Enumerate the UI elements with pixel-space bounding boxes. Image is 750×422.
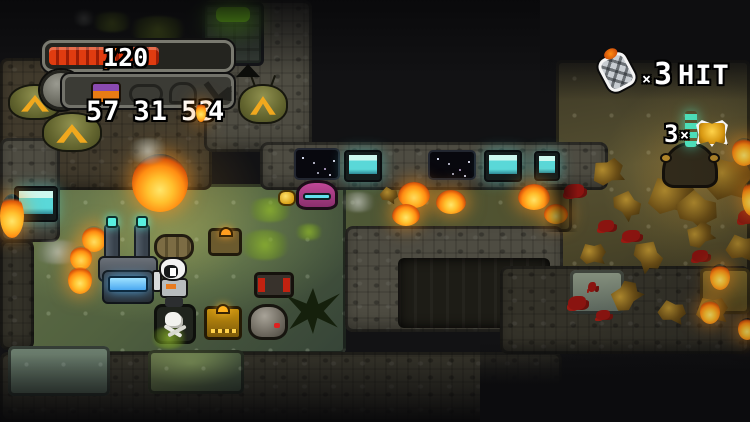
skull-icon [165, 312, 181, 326]
dots-row [211, 329, 237, 333]
health-text: 17/20 [103, 45, 118, 70]
game-scene: 17/20 573153 4 × 3 HIT 3 × [0, 0, 750, 422]
corridor-fire [392, 204, 420, 226]
turret-light-icon [106, 216, 118, 228]
ammo-count-1: 57 [86, 96, 121, 127]
floor-pocket[interactable] [8, 346, 110, 396]
gib-splat [568, 296, 586, 310]
yellow-pickup[interactable] [278, 190, 296, 206]
grenade-counter: × 3 HIT [598, 46, 748, 106]
player-helmet [159, 257, 187, 281]
machine-arm [660, 153, 672, 163]
red-band [258, 278, 265, 292]
wall-panel-dark-1 [294, 148, 340, 180]
panel-stars [437, 158, 439, 160]
alcove-fire [710, 264, 730, 290]
health-max: 20 [118, 45, 148, 70]
wall-monitor-3 [534, 151, 560, 181]
grenade-spark-icon [602, 46, 619, 61]
acid-splat [294, 224, 324, 240]
grenade-times: × [642, 72, 651, 87]
gib-splat [596, 310, 610, 320]
gold-crate[interactable] [204, 306, 242, 340]
corridor-fire [544, 204, 568, 224]
panel-stars [302, 157, 304, 159]
corridor-fire [436, 190, 466, 214]
wall-panel-dark-2 [428, 150, 476, 180]
alien-bug-3[interactable] [238, 84, 288, 124]
smoke-puff [338, 192, 378, 212]
loot-counter: 3 × [664, 118, 750, 150]
console-screen-icon [108, 276, 148, 292]
lamp-crate[interactable] [208, 228, 242, 256]
grenade-icon [595, 49, 638, 95]
gold-badge-icon [696, 120, 728, 147]
skull-remains[interactable] [154, 304, 196, 344]
grenade-label: HIT [678, 62, 730, 89]
door-green-light-icon [216, 7, 250, 22]
gib-splat [622, 230, 640, 242]
player-face [170, 268, 176, 276]
small-fire [0, 194, 24, 238]
small-fire [68, 266, 92, 294]
wall-monitor-1 [344, 150, 382, 182]
rock-eye-icon [274, 323, 280, 328]
gib-splat [588, 282, 596, 292]
turret-light-icon [136, 216, 148, 228]
gib-splat [564, 184, 584, 198]
gib-splat [598, 220, 614, 232]
wall-left-edge [0, 240, 34, 350]
health-bar: 17/20 [42, 40, 234, 72]
machine-arm [708, 153, 720, 163]
gib-splat [692, 250, 708, 262]
acid-splat [238, 230, 292, 260]
loot-count: 3 [664, 122, 678, 146]
player-legs [165, 297, 183, 307]
corridor-fire [518, 184, 550, 210]
flame-icon [196, 102, 206, 122]
rock-creature[interactable] [248, 304, 288, 340]
right-fire [738, 318, 750, 340]
gold-dome-icon [216, 304, 230, 314]
ammo-count-2: 31 [134, 96, 169, 127]
loot-times: × [680, 128, 689, 143]
explosion-smoke [126, 138, 170, 164]
moss-patch [126, 16, 190, 42]
alien-visor-icon [303, 193, 331, 200]
floor-tongue[interactable] [148, 350, 244, 394]
special-ammo-count: 4 [208, 98, 224, 125]
player-character[interactable] [152, 254, 196, 308]
red-striped-crate[interactable] [254, 272, 294, 298]
right-fire [700, 300, 720, 324]
lamp-dome-icon [219, 227, 233, 237]
purple-alien-enemy[interactable] [296, 180, 338, 210]
player-chest-stripe [166, 284, 176, 289]
grenade-count: 3 [654, 60, 672, 90]
wall-monitor-2 [484, 150, 522, 182]
red-band [283, 278, 290, 292]
door-step-right [236, 64, 260, 77]
